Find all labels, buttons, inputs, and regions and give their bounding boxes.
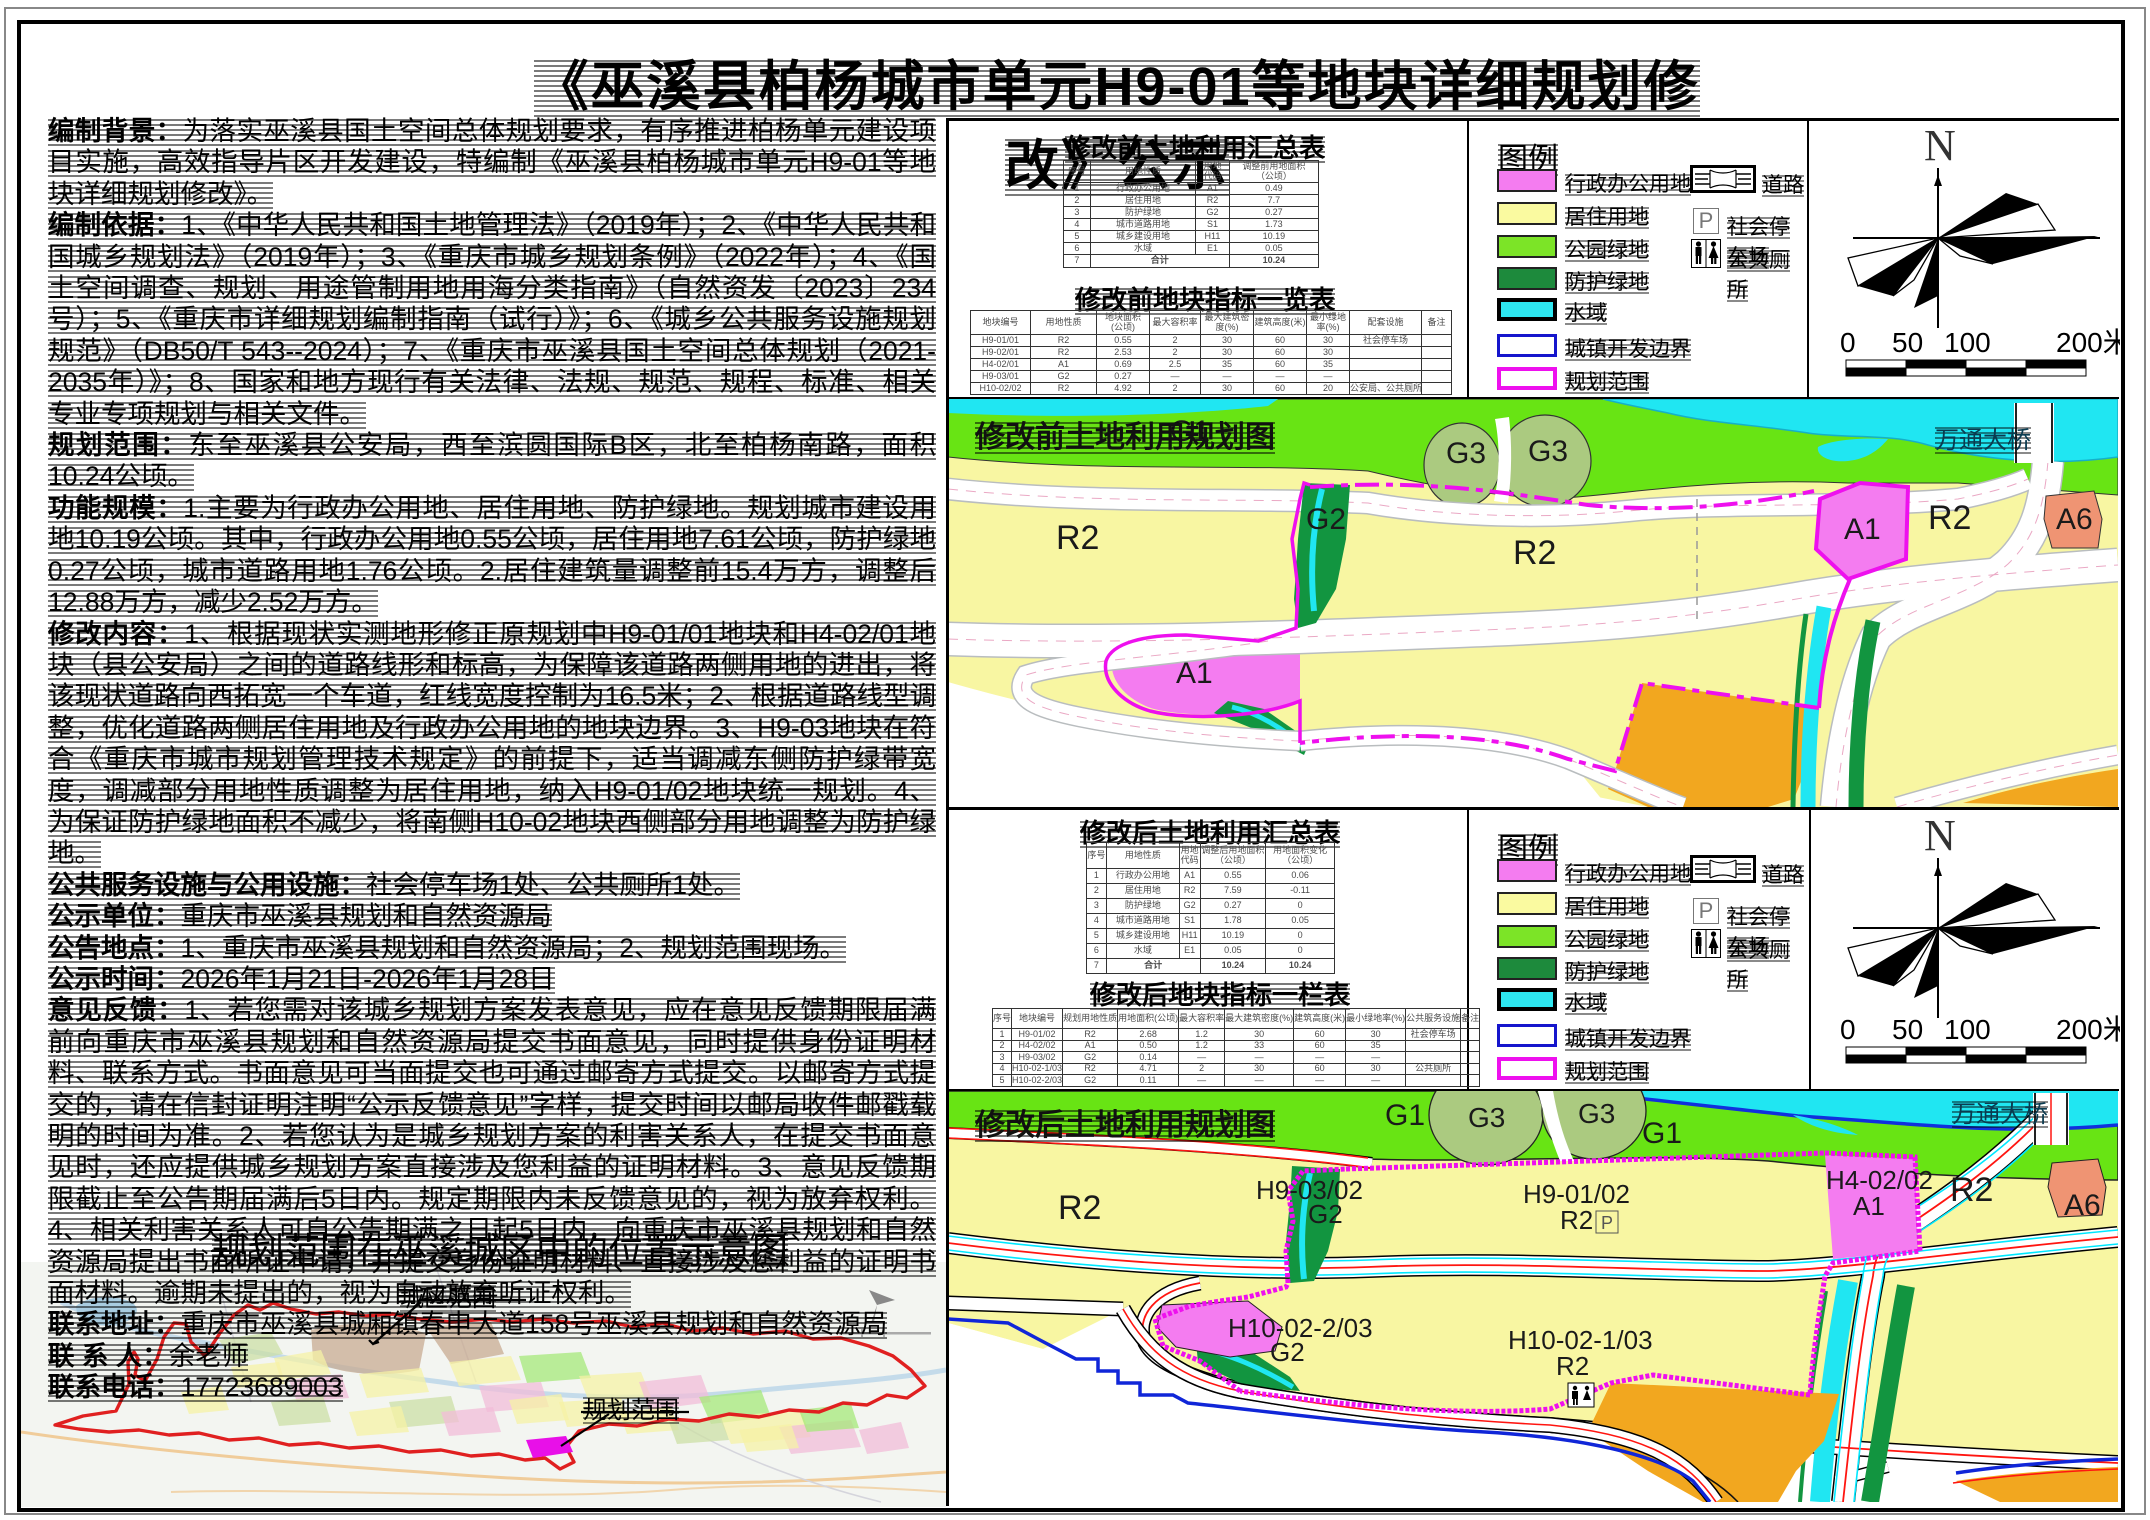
svg-text:G3: G3 (1446, 437, 1486, 470)
svg-text:R2: R2 (1058, 1189, 1101, 1227)
svg-text:P: P (1601, 1213, 1613, 1233)
svg-text:200米: 200米 (2056, 327, 2120, 358)
svg-text:G2: G2 (1308, 1199, 1343, 1229)
svg-text:50: 50 (1892, 1014, 1923, 1045)
svg-text:0: 0 (1840, 1014, 1856, 1045)
svg-text:A6: A6 (2056, 503, 2093, 536)
svg-text:N: N (1924, 121, 1956, 170)
svg-text:A1: A1 (1853, 1191, 1885, 1221)
svg-text:0: 0 (1840, 327, 1856, 358)
svg-text:A1: A1 (1176, 657, 1213, 690)
svg-text:200米: 200米 (2056, 1014, 2120, 1045)
svg-text:G3: G3 (1578, 1098, 1615, 1129)
svg-text:G3: G3 (1468, 1102, 1505, 1133)
svg-text:R2: R2 (1556, 1351, 1589, 1381)
svg-text:N: N (1924, 811, 1956, 860)
svg-text:R2: R2 (1560, 1205, 1593, 1235)
svg-text:R2: R2 (1928, 499, 1971, 537)
svg-text:50: 50 (1892, 327, 1923, 358)
svg-text:R2: R2 (1950, 1171, 1993, 1209)
svg-text:100: 100 (1944, 327, 1991, 358)
svg-text:R2: R2 (1056, 519, 1099, 557)
svg-text:A6: A6 (2064, 1189, 2101, 1222)
svg-text:A1: A1 (1844, 513, 1881, 546)
svg-text:G2: G2 (1270, 1337, 1305, 1367)
svg-text:G1: G1 (1642, 1117, 1682, 1150)
svg-text:G2: G2 (1306, 503, 1346, 536)
svg-text:R2: R2 (1513, 534, 1556, 572)
svg-text:G3: G3 (1528, 435, 1568, 468)
svg-text:100: 100 (1944, 1014, 1991, 1045)
svg-text:G1: G1 (1385, 1099, 1425, 1132)
